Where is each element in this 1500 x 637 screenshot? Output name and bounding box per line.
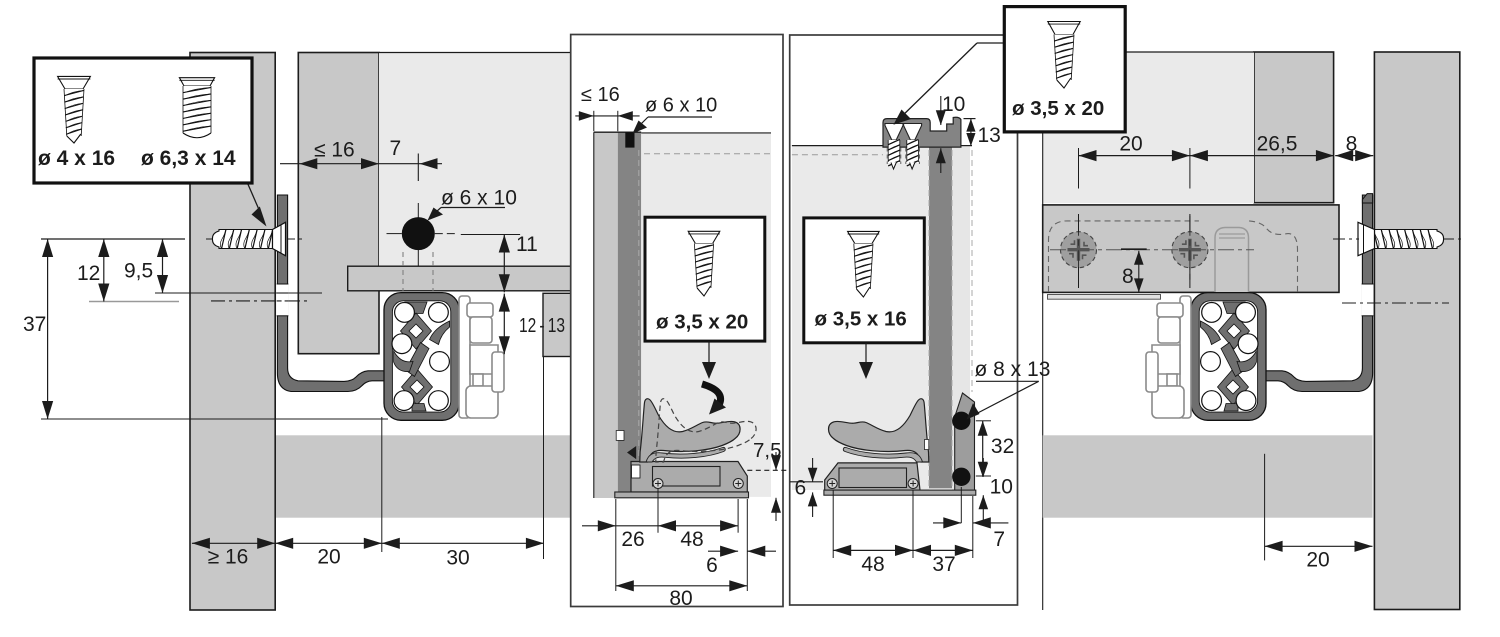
svg-text:11: 11 [516, 233, 538, 256]
svg-text:ø 6 x 10: ø 6 x 10 [441, 187, 517, 210]
svg-text:8: 8 [1122, 265, 1134, 288]
svg-text:ø 3,5 x 20: ø 3,5 x 20 [656, 311, 748, 334]
svg-text:37: 37 [932, 553, 955, 576]
svg-text:12: 12 [77, 262, 100, 285]
svg-text:10: 10 [990, 476, 1013, 499]
svg-text:ø 3,5 x 20: ø 3,5 x 20 [1012, 97, 1104, 120]
svg-text:13: 13 [978, 124, 1001, 147]
svg-text:ø 6,3 x 14: ø 6,3 x 14 [141, 147, 236, 170]
svg-text:ø 6 x 10: ø 6 x 10 [645, 95, 717, 117]
svg-text:≤ 16: ≤ 16 [314, 139, 355, 162]
svg-text:6: 6 [706, 554, 718, 577]
svg-text:ø 4 x 16: ø 4 x 16 [38, 147, 115, 170]
svg-text:9,5: 9,5 [124, 260, 153, 283]
svg-text:20: 20 [1119, 133, 1142, 156]
svg-text:37: 37 [23, 313, 46, 336]
svg-text:ø 3,5 x 16: ø 3,5 x 16 [815, 308, 907, 331]
svg-text:ø 8 x 13: ø 8 x 13 [975, 358, 1051, 381]
svg-text:7: 7 [390, 137, 402, 160]
svg-text:32: 32 [991, 435, 1014, 458]
svg-text:26,5: 26,5 [1257, 133, 1298, 156]
svg-text:10: 10 [942, 93, 965, 116]
svg-text:12 - 13: 12 - 13 [519, 315, 565, 337]
svg-text:≤ 16: ≤ 16 [581, 84, 620, 106]
svg-text:48: 48 [680, 528, 703, 551]
svg-text:26: 26 [621, 528, 644, 551]
svg-text:20: 20 [317, 546, 340, 569]
svg-text:≥ 16: ≥ 16 [208, 546, 249, 569]
svg-text:7,5: 7,5 [753, 439, 782, 462]
svg-text:6: 6 [795, 477, 807, 500]
svg-text:8: 8 [1346, 133, 1358, 156]
svg-text:30: 30 [446, 547, 469, 570]
svg-text:20: 20 [1306, 549, 1329, 572]
svg-text:7: 7 [993, 528, 1005, 551]
svg-text:80: 80 [669, 587, 692, 610]
svg-text:48: 48 [861, 553, 884, 576]
